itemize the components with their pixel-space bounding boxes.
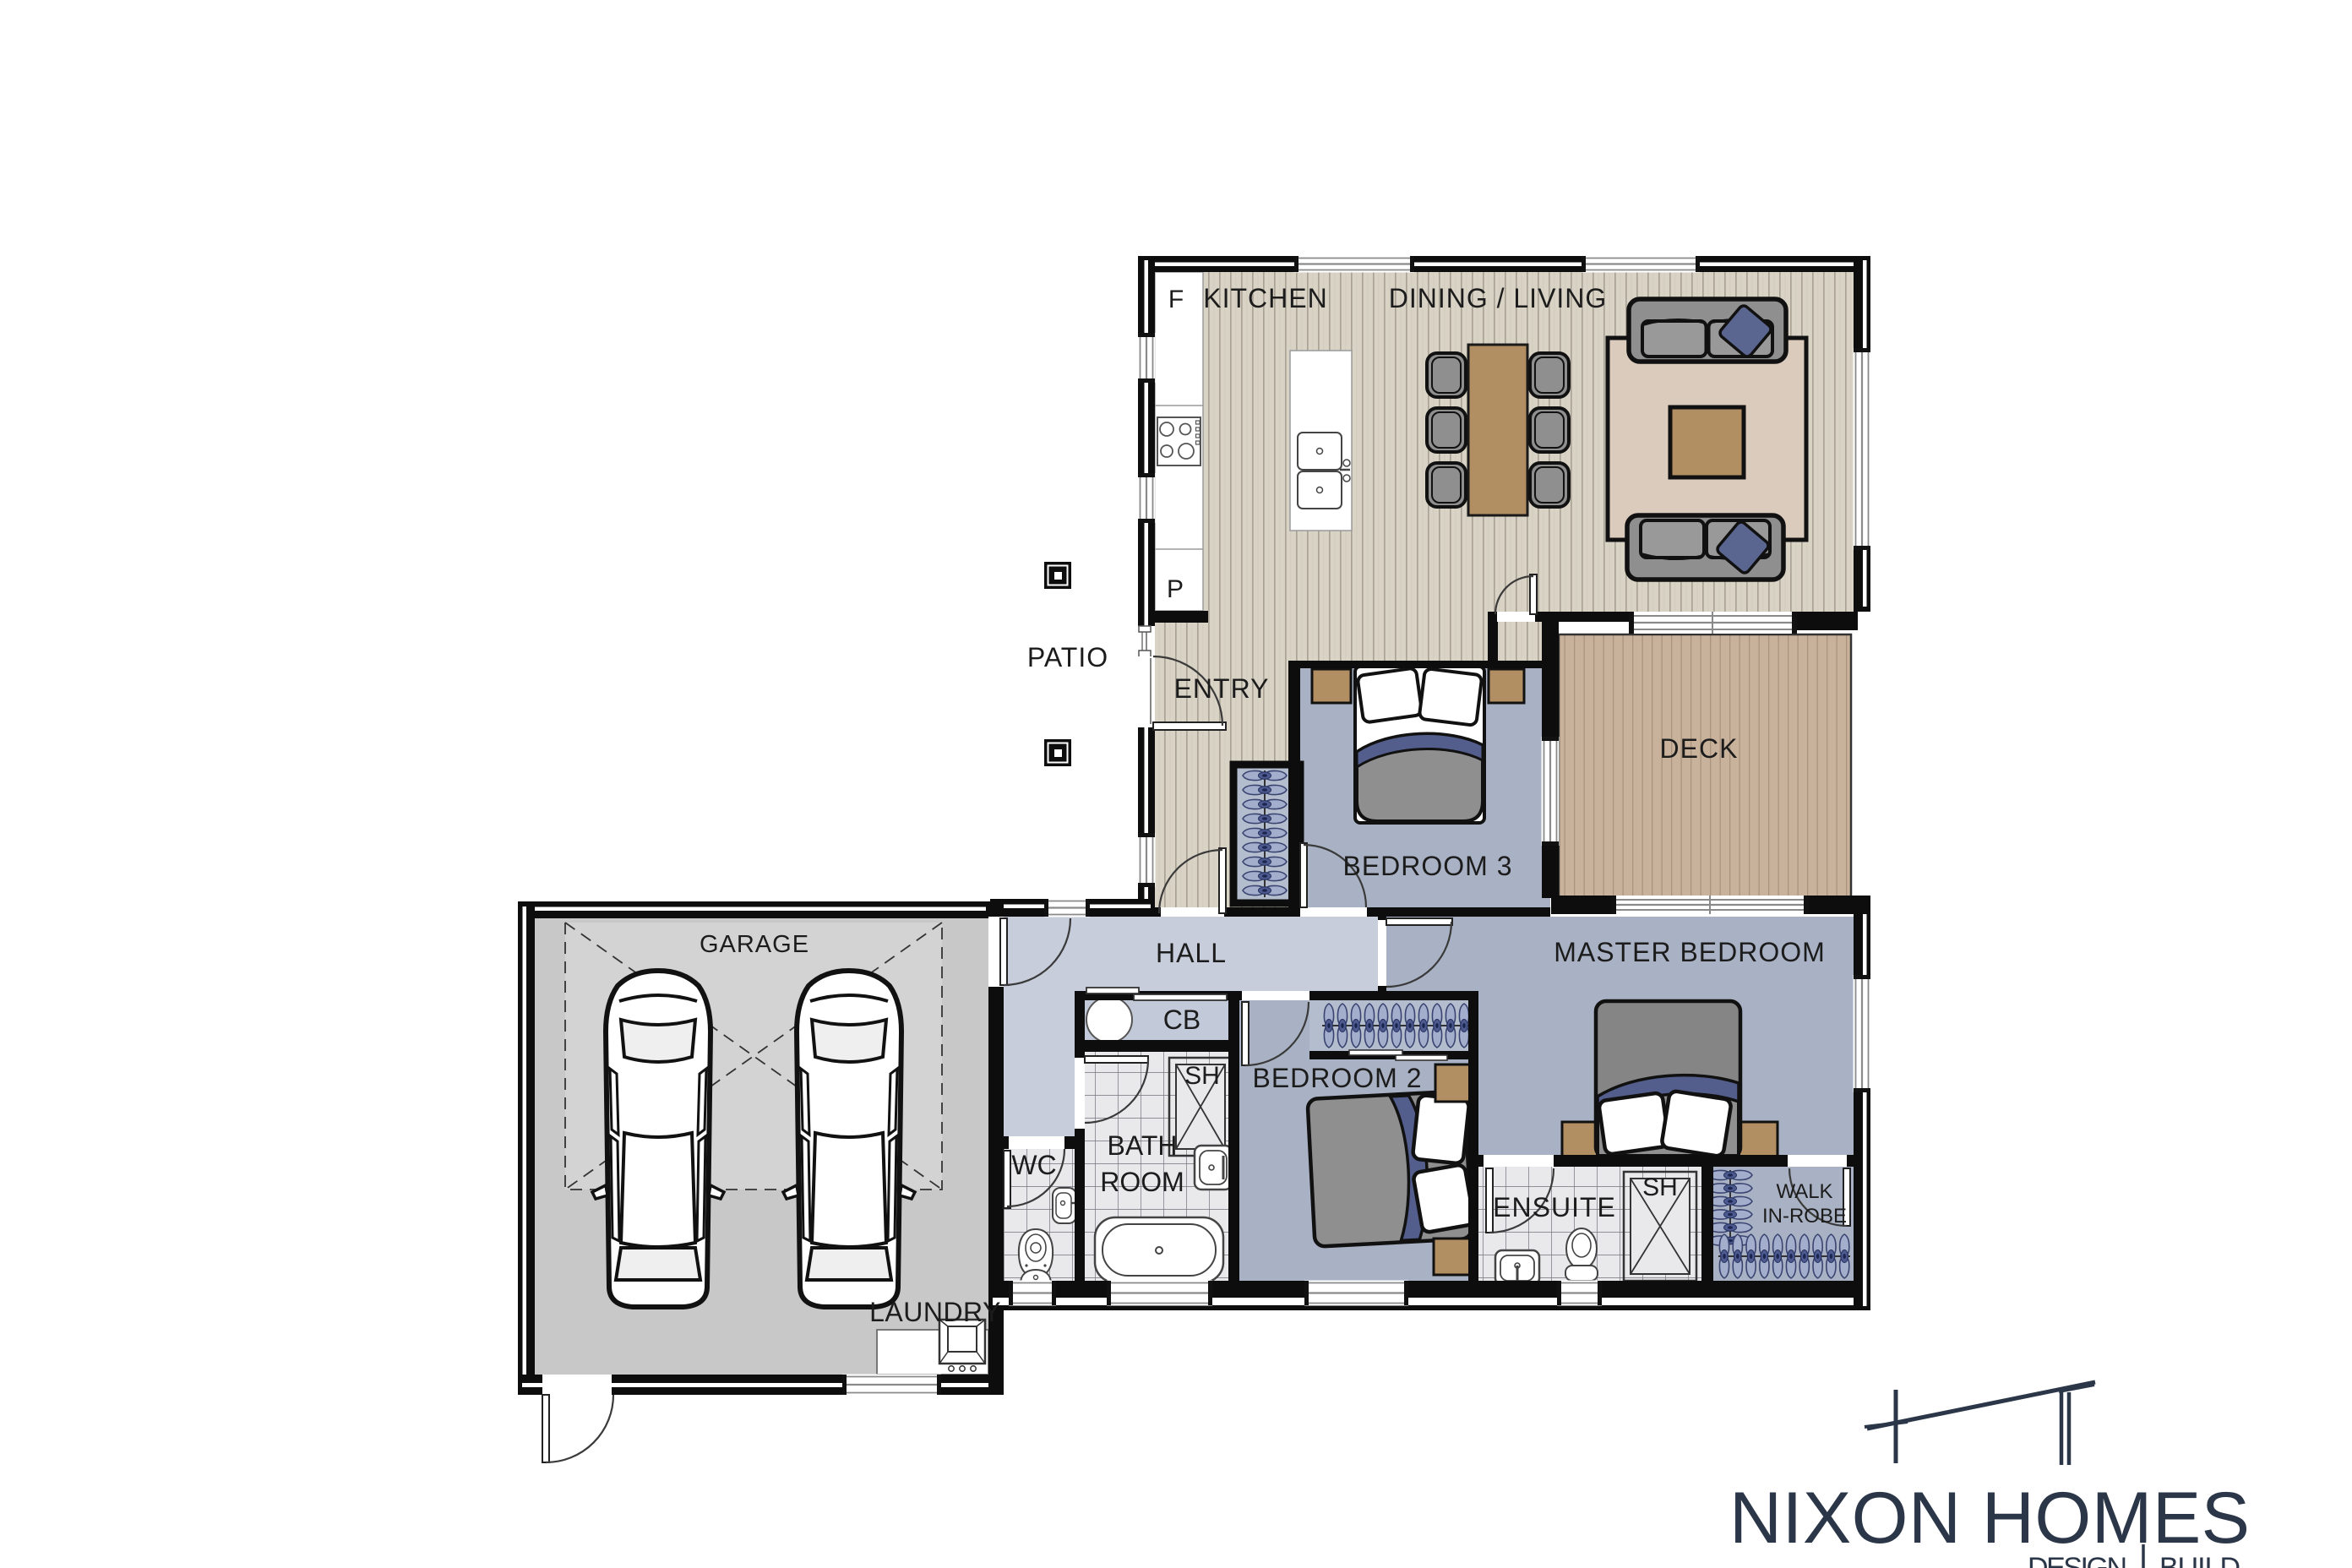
svg-text:ENTRY: ENTRY xyxy=(1174,673,1270,704)
svg-text:P: P xyxy=(1167,575,1184,603)
svg-text:BATH: BATH xyxy=(1108,1130,1178,1161)
svg-text:BEDROOM 2: BEDROOM 2 xyxy=(1252,1063,1422,1093)
svg-text:F: F xyxy=(1168,286,1184,313)
svg-text:ROOM: ROOM xyxy=(1100,1167,1184,1197)
svg-text:GARAGE: GARAGE xyxy=(700,931,809,958)
svg-text:BUILD: BUILD xyxy=(2159,1552,2240,1568)
svg-text:DECK: DECK xyxy=(1660,733,1739,764)
svg-text:CB: CB xyxy=(1163,1004,1200,1035)
svg-text:NIXON HOMES: NIXON HOMES xyxy=(1729,1478,2250,1559)
svg-text:PATIO: PATIO xyxy=(1027,642,1108,672)
svg-text:ENSUITE: ENSUITE xyxy=(1493,1192,1616,1222)
svg-text:SH: SH xyxy=(1642,1173,1678,1201)
svg-text:DESIGN: DESIGN xyxy=(2028,1552,2127,1568)
svg-text:SH: SH xyxy=(1184,1062,1220,1090)
svg-text:BEDROOM 3: BEDROOM 3 xyxy=(1342,851,1512,881)
svg-text:MASTER BEDROOM: MASTER BEDROOM xyxy=(1554,937,1826,967)
svg-text:DINING / LIVING: DINING / LIVING xyxy=(1389,283,1608,313)
svg-text:IN-ROBE: IN-ROBE xyxy=(1762,1205,1847,1228)
svg-text:LAUNDRY: LAUNDRY xyxy=(869,1297,1001,1327)
svg-text:WC: WC xyxy=(1011,1150,1056,1180)
svg-text:WALK: WALK xyxy=(1776,1180,1832,1203)
svg-text:HALL: HALL xyxy=(1156,938,1227,968)
svg-text:KITCHEN: KITCHEN xyxy=(1203,283,1327,313)
